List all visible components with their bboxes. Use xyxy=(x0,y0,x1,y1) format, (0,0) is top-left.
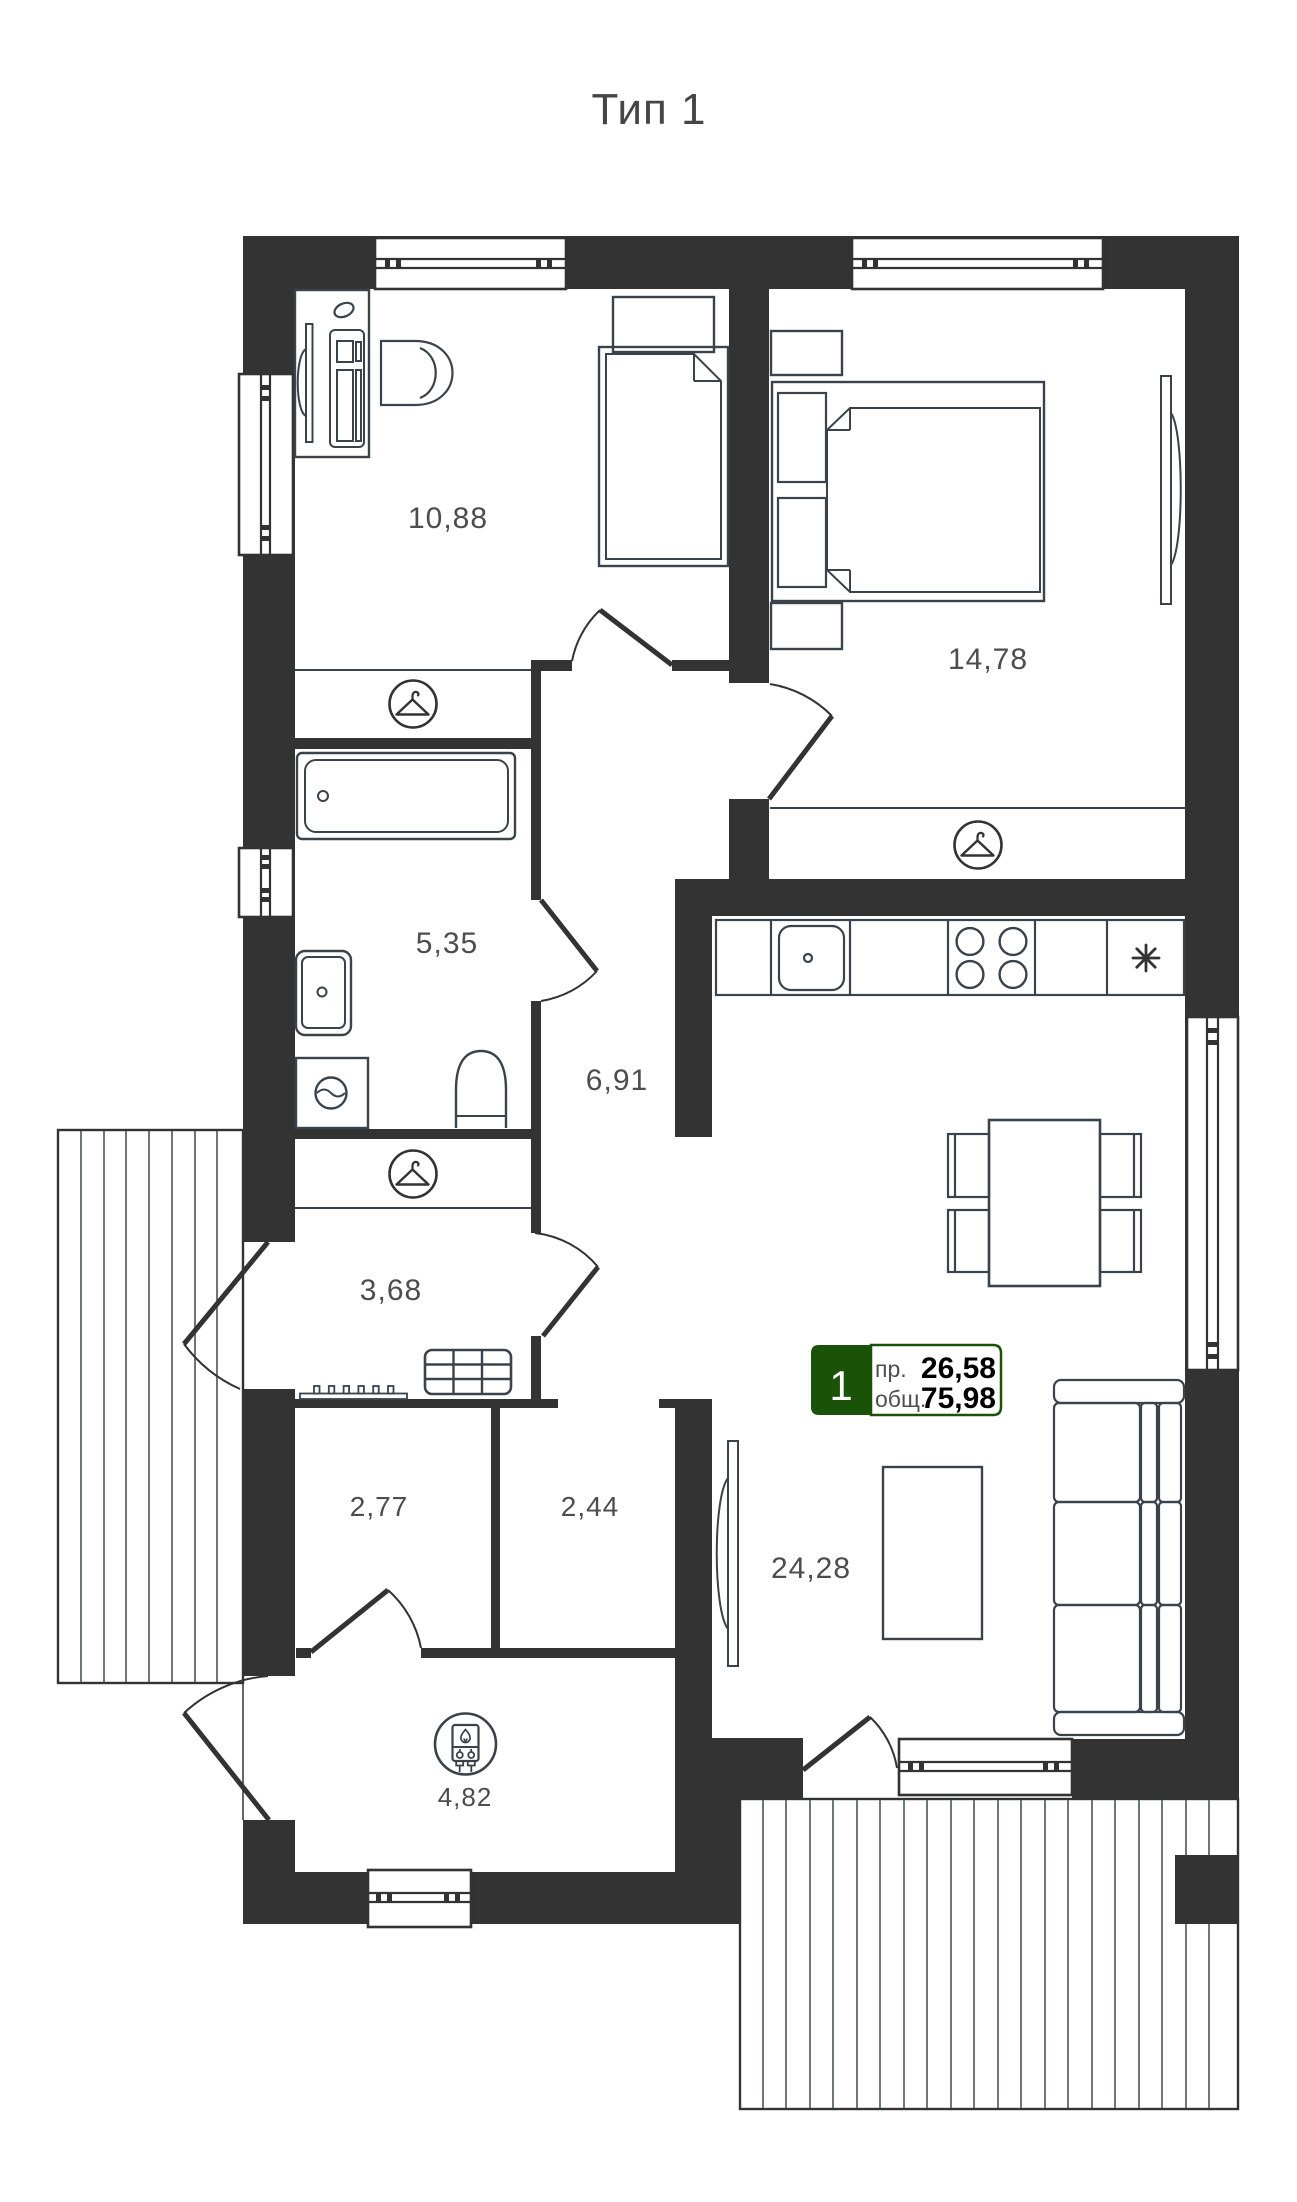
svg-text:6,91: 6,91 xyxy=(586,1064,648,1097)
svg-text:26,58: 26,58 xyxy=(921,1352,996,1385)
svg-text:3,68: 3,68 xyxy=(360,1274,422,1307)
svg-text:2,77: 2,77 xyxy=(350,1491,409,1522)
svg-text:24,28: 24,28 xyxy=(771,1552,851,1585)
svg-text:10,88: 10,88 xyxy=(408,502,488,535)
svg-text:75,98: 75,98 xyxy=(921,1382,996,1415)
svg-text:4,82: 4,82 xyxy=(438,1782,493,1812)
svg-text:пр.: пр. xyxy=(875,1356,907,1382)
svg-text:1: 1 xyxy=(829,1362,852,1409)
svg-text:14,78: 14,78 xyxy=(948,643,1028,676)
svg-text:5,35: 5,35 xyxy=(416,927,478,960)
svg-text:Тип 1: Тип 1 xyxy=(591,85,706,134)
svg-text:2,44: 2,44 xyxy=(561,1491,620,1522)
svg-text:общ.: общ. xyxy=(875,1386,926,1412)
